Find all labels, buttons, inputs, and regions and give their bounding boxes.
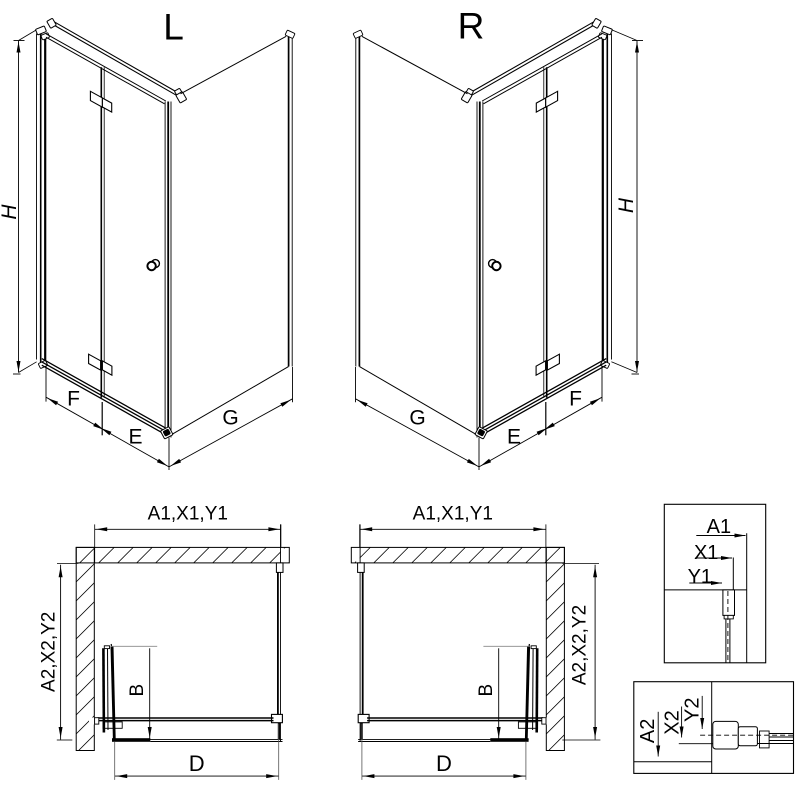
svg-text:F: F — [569, 388, 582, 411]
svg-text:A2: A2 — [637, 719, 659, 743]
svg-text:F: F — [67, 388, 80, 411]
svg-text:E: E — [507, 426, 521, 449]
svg-text:D: D — [436, 751, 452, 776]
svg-text:G: G — [409, 407, 425, 430]
svg-text:D: D — [189, 751, 205, 776]
svg-text:A1,X1,Y1: A1,X1,Y1 — [148, 504, 228, 525]
svg-text:H: H — [615, 197, 638, 213]
svg-text:A2,X2,Y2: A2,X2,Y2 — [39, 612, 60, 692]
svg-text:X2: X2 — [662, 710, 684, 734]
svg-text:R: R — [458, 6, 485, 47]
svg-text:A1: A1 — [707, 516, 731, 538]
svg-text:A1,X1,Y1: A1,X1,Y1 — [413, 504, 493, 525]
svg-text:H: H — [0, 204, 21, 220]
svg-text:Y1: Y1 — [688, 566, 712, 588]
svg-text:G: G — [222, 407, 238, 430]
svg-text:B: B — [476, 684, 497, 697]
svg-text:B: B — [127, 684, 148, 697]
svg-text:X1: X1 — [694, 542, 718, 564]
svg-text:L: L — [163, 7, 184, 48]
svg-text:E: E — [128, 426, 142, 449]
svg-text:A2,X2,Y2: A2,X2,Y2 — [570, 605, 591, 685]
